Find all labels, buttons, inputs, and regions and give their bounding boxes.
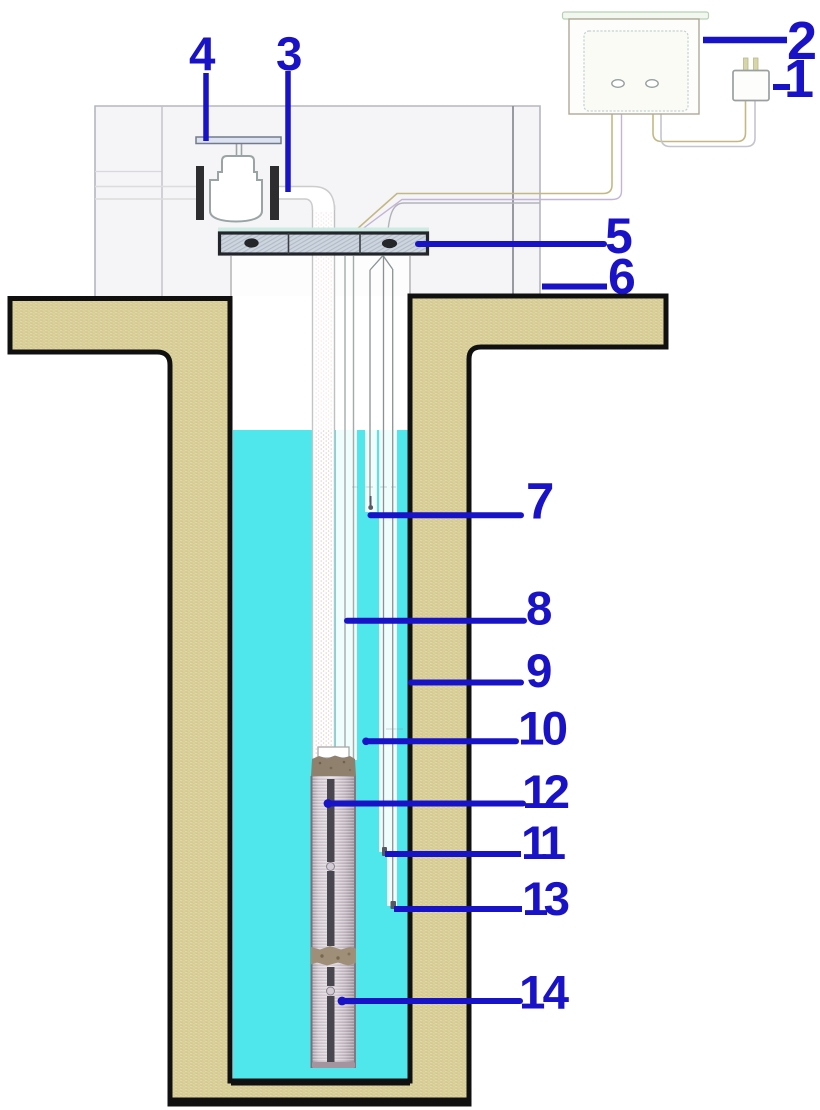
svg-text:7: 7 <box>526 473 554 530</box>
svg-text:10: 10 <box>518 703 568 756</box>
svg-text:12: 12 <box>522 766 570 819</box>
svg-text:9: 9 <box>526 645 552 698</box>
svg-text:4: 4 <box>189 28 216 81</box>
svg-text:8: 8 <box>526 583 552 636</box>
svg-text:2: 2 <box>787 11 817 71</box>
svg-text:13: 13 <box>522 873 570 926</box>
svg-text:3: 3 <box>276 28 302 81</box>
svg-text:6: 6 <box>608 249 636 305</box>
svg-text:11: 11 <box>521 817 566 870</box>
svg-text:14: 14 <box>519 966 570 1019</box>
